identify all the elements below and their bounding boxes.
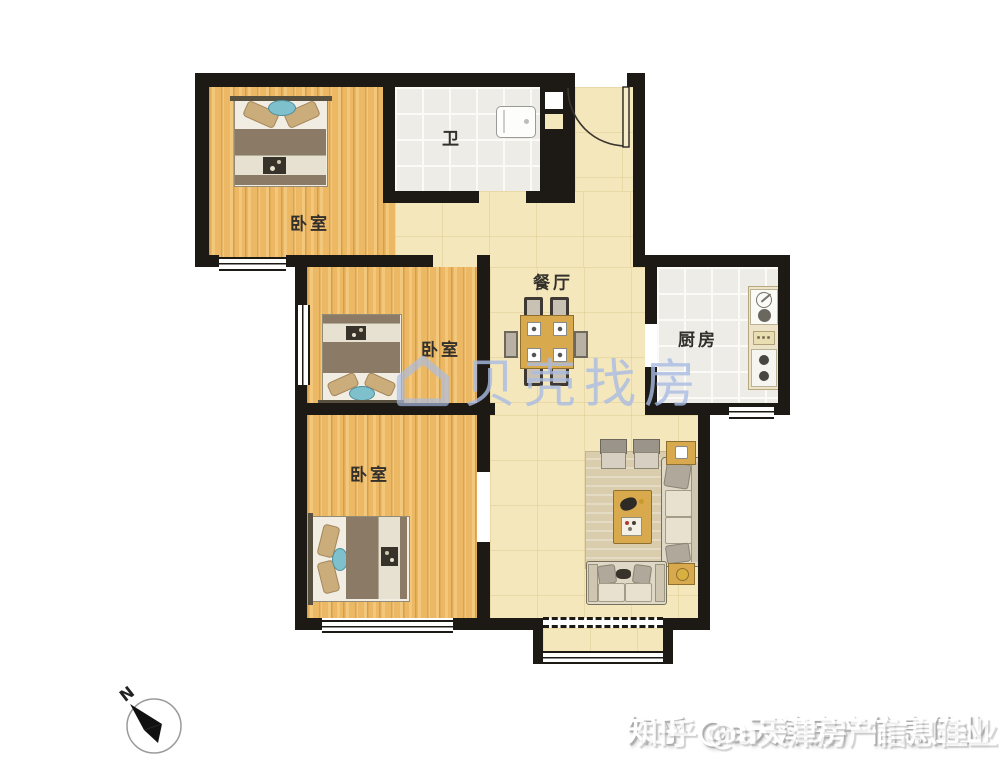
bed-headboard [308, 513, 313, 605]
bed-blanket [235, 129, 326, 155]
tray-dot [632, 521, 636, 525]
room-label-dining: 餐厅 [533, 269, 573, 294]
wall-bay-left [533, 618, 543, 664]
room-label-bedroom-top: 卧室 [290, 210, 330, 235]
bed-foot [235, 175, 326, 185]
bed-top-bedroom [234, 99, 328, 187]
sink-panel [750, 289, 778, 325]
wall [778, 255, 790, 415]
armchair [600, 439, 627, 469]
wall [195, 255, 219, 267]
brass-bowl [676, 568, 689, 581]
wall [195, 73, 209, 267]
wall [453, 618, 543, 630]
wall [477, 255, 490, 267]
armchair-seat [634, 452, 659, 469]
wall [383, 191, 479, 203]
washer-knob [524, 119, 529, 124]
side-table-bottom [668, 563, 695, 585]
bed-round-pillow [268, 100, 296, 116]
armchair-seat [601, 452, 626, 469]
door-arc [568, 88, 626, 146]
wall [477, 415, 490, 472]
box-dot [757, 336, 760, 339]
wall [645, 367, 657, 415]
wall [633, 255, 790, 267]
box-dot [762, 336, 765, 339]
tray-dot [277, 160, 281, 164]
loveseat [586, 561, 667, 605]
counter-box [753, 331, 775, 345]
place-setting [553, 322, 567, 336]
bed-round-pillow [349, 386, 375, 401]
wall [526, 191, 575, 203]
wall-niche [545, 92, 563, 109]
loveseat-cushion [598, 583, 625, 602]
sofa-pillow [663, 461, 692, 490]
wall [295, 415, 307, 630]
wall-niche [545, 114, 563, 129]
entry-door-swing [565, 85, 635, 155]
bathroom-floor [395, 87, 540, 191]
bed-throw-band [235, 155, 326, 177]
room-label-kitchen: 厨房 [678, 326, 718, 351]
wall [295, 618, 322, 630]
wall [670, 618, 710, 630]
main-sofa [661, 457, 702, 567]
loveseat-arm-right [655, 564, 665, 602]
door-leaf [623, 87, 629, 147]
tray-dot [359, 328, 363, 332]
bed-blanket [323, 342, 400, 373]
kitchen-counter [748, 286, 780, 390]
loveseat-pillow [597, 564, 617, 585]
bed-tray [381, 547, 398, 566]
sofa-cushion [665, 490, 692, 517]
wall [383, 87, 395, 203]
place-setting [527, 348, 541, 362]
tray-dot [628, 527, 632, 531]
burner [759, 371, 769, 381]
coffee-table [613, 490, 652, 544]
washing-machine [496, 106, 536, 138]
compass-n-label: N [116, 682, 138, 705]
burner [759, 355, 769, 365]
place-setting [527, 322, 541, 336]
bed-blanket [346, 517, 378, 599]
tray-dot [352, 333, 356, 337]
zhihu-watermark: 知乎 @a天津房产信息佳业 知乎 @a天津房产信息佳业 [627, 706, 988, 750]
bed-throw-band [378, 517, 401, 599]
sink-basin [758, 309, 771, 322]
side-table-top [666, 441, 696, 465]
tray-dot [390, 558, 394, 562]
balcony-boundary-line [543, 617, 663, 628]
tray-dot [270, 166, 275, 171]
window [322, 620, 453, 633]
wall [477, 267, 490, 415]
wall [195, 73, 575, 87]
wall [698, 403, 710, 618]
stove-panel [751, 349, 777, 387]
zhihu-watermark-ghost: 知乎 @a天津房产信息佳业 [637, 709, 998, 753]
tray-dot [625, 521, 629, 525]
bay-window [543, 651, 663, 664]
box-dot [767, 336, 770, 339]
tray [621, 517, 642, 536]
window [296, 305, 310, 385]
wall [295, 403, 495, 415]
wall [477, 542, 490, 630]
loveseat-decor [616, 569, 631, 579]
place-setting [553, 348, 567, 362]
window [219, 257, 286, 271]
dining-stool [574, 331, 588, 358]
bed-bottom-bedroom [312, 516, 410, 602]
armchair [633, 439, 660, 469]
wall [645, 267, 657, 324]
dining-stool [504, 331, 518, 358]
decor-dot [639, 499, 644, 504]
sofa-pillow [665, 542, 691, 564]
bed-foot [323, 315, 400, 323]
dining-table [520, 315, 574, 369]
wall [286, 255, 433, 267]
decor-item [618, 495, 638, 512]
washer-panel-line [503, 110, 505, 133]
loveseat-cushion [625, 583, 652, 602]
bed-throw-band [323, 323, 400, 344]
bed-middle-bedroom [322, 314, 402, 404]
bed-foot [400, 517, 407, 599]
window [729, 405, 774, 419]
floor-plan-canvas: 卧室 卫 餐厅 厨房 卧室 卧室 贝壳找房 知乎 @a天津房产信息佳业 知乎 @… [0, 0, 1000, 767]
compass-icon: N [112, 678, 192, 762]
room-label-bedroom-middle: 卧室 [421, 336, 461, 361]
loveseat-pillow [632, 564, 652, 585]
sofa-cushion [665, 517, 692, 544]
cup [675, 446, 688, 459]
bed-tray [263, 157, 286, 174]
bed-tray [346, 326, 366, 340]
room-label-bathroom: 卫 [442, 125, 462, 150]
room-label-bedroom-bottom: 卧室 [350, 461, 390, 486]
tray-dot [385, 551, 389, 555]
